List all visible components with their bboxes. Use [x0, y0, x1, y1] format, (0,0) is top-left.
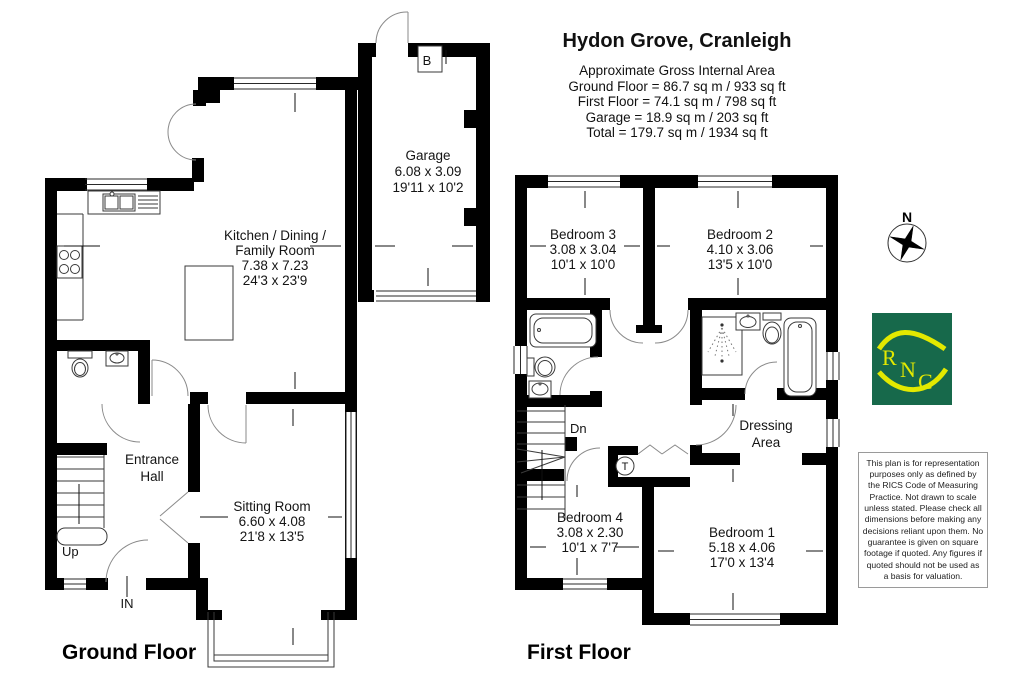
svg-text:N: N	[902, 209, 912, 225]
svg-text:17'0 x 13'4: 17'0 x 13'4	[710, 555, 775, 570]
svg-text:Garage: Garage	[405, 148, 450, 163]
svg-text:5.18 x 4.06: 5.18 x 4.06	[709, 540, 776, 555]
svg-text:Bedroom 3: Bedroom 3	[550, 227, 616, 242]
rnc-logo: R N C	[872, 313, 952, 405]
bay-window	[208, 612, 334, 667]
svg-text:10'1 x 7'7: 10'1 x 7'7	[562, 540, 619, 555]
svg-text:Bedroom 2: Bedroom 2	[707, 227, 773, 242]
svg-text:Area: Area	[752, 435, 781, 450]
sitting-room-label: Sitting Room 6.60 x 4.08 21'8 x 13'5	[233, 499, 310, 544]
svg-text:Family Room: Family Room	[235, 243, 315, 258]
tank-label: T	[622, 461, 629, 473]
bedroom2-label: Bedroom 2 4.10 x 3.06 13'5 x 10'0	[707, 227, 774, 272]
garage-label: Garage 6.08 x 3.09 19'11 x 10'2	[393, 148, 464, 195]
bedroom4-label: Bedroom 4 3.08 x 2.30 10'1 x 7'7	[557, 510, 624, 555]
ground-floor-title: Ground Floor	[62, 641, 196, 664]
svg-text:6.60 x 4.08: 6.60 x 4.08	[239, 514, 306, 529]
dressing-area-label: Dressing Area	[739, 418, 792, 450]
svg-text:4.10 x 3.06: 4.10 x 3.06	[707, 242, 774, 257]
svg-text:Entrance: Entrance	[125, 452, 179, 467]
first-floor-plan: Dn T	[512, 175, 840, 625]
down-label: Dn	[570, 421, 587, 436]
svg-text:Hall: Hall	[140, 469, 163, 484]
svg-text:19'11 x 10'2: 19'11 x 10'2	[393, 180, 464, 195]
area-summary: Approximate Gross Internal Area Ground F…	[532, 63, 822, 141]
svg-text:21'8 x 13'5: 21'8 x 13'5	[240, 529, 304, 544]
title-block: Hydon Grove, Cranleigh Approximate Gross…	[532, 30, 822, 141]
kitchen-fixtures	[57, 191, 233, 340]
page-title: Hydon Grove, Cranleigh	[532, 30, 822, 53]
ground-floor-plan: Up	[45, 77, 368, 667]
svg-text:B: B	[423, 53, 432, 68]
svg-text:7.38 x 7.23: 7.38 x 7.23	[242, 258, 309, 273]
wc-fixtures	[68, 351, 128, 377]
boiler-marker: B	[418, 46, 446, 72]
compass-north-icon: N	[888, 209, 926, 262]
ensuite-fixtures	[702, 313, 816, 396]
disclaimer-text: This plan is for representation purposes…	[863, 458, 983, 582]
first-floor-title: First Floor	[527, 641, 631, 664]
logo-letter-n: N	[900, 357, 916, 382]
bedroom3-label: Bedroom 3 3.08 x 3.04 10'1 x 10'0	[550, 227, 617, 272]
svg-text:Kitchen / Dining /: Kitchen / Dining /	[224, 228, 326, 243]
disclaimer-box: This plan is for representation purposes…	[858, 452, 988, 588]
up-label: Up	[62, 544, 79, 559]
garage-dimension-arrows	[375, 246, 473, 286]
svg-text:10'1 x 10'0: 10'1 x 10'0	[551, 257, 615, 272]
logo-letter-c: C	[918, 369, 933, 394]
garage-plan: B Garage 6.08 x 3.09 19'11 x 10'2	[358, 12, 490, 302]
garage-door	[376, 291, 476, 301]
gf-staircase: Up	[57, 455, 107, 559]
bedroom1-label: Bedroom 1 5.18 x 4.06 17'0 x 13'4	[709, 525, 776, 570]
kitchen-label: Kitchen / Dining / Family Room 7.38 x 7.…	[224, 228, 326, 288]
svg-text:13'5 x 10'0: 13'5 x 10'0	[708, 257, 772, 272]
svg-text:24'3 x 23'9: 24'3 x 23'9	[243, 273, 307, 288]
svg-text:6.08 x 3.09: 6.08 x 3.09	[395, 164, 462, 179]
svg-text:Bedroom 4: Bedroom 4	[557, 510, 624, 525]
svg-text:3.08 x 2.30: 3.08 x 2.30	[557, 525, 624, 540]
ff-staircase: Dn	[517, 405, 587, 520]
floorplan-page: Up	[0, 0, 1020, 680]
entry-label: IN	[121, 596, 134, 611]
entrance-hall-label: Entrance Hall	[125, 452, 179, 484]
logo-letter-r: R	[882, 345, 897, 370]
svg-text:3.08 x 3.04: 3.08 x 3.04	[550, 242, 617, 257]
svg-text:Sitting Room: Sitting Room	[233, 499, 310, 514]
garage-side-door	[376, 12, 408, 43]
svg-text:Dressing: Dressing	[739, 418, 792, 433]
svg-text:Bedroom 1: Bedroom 1	[709, 525, 775, 540]
